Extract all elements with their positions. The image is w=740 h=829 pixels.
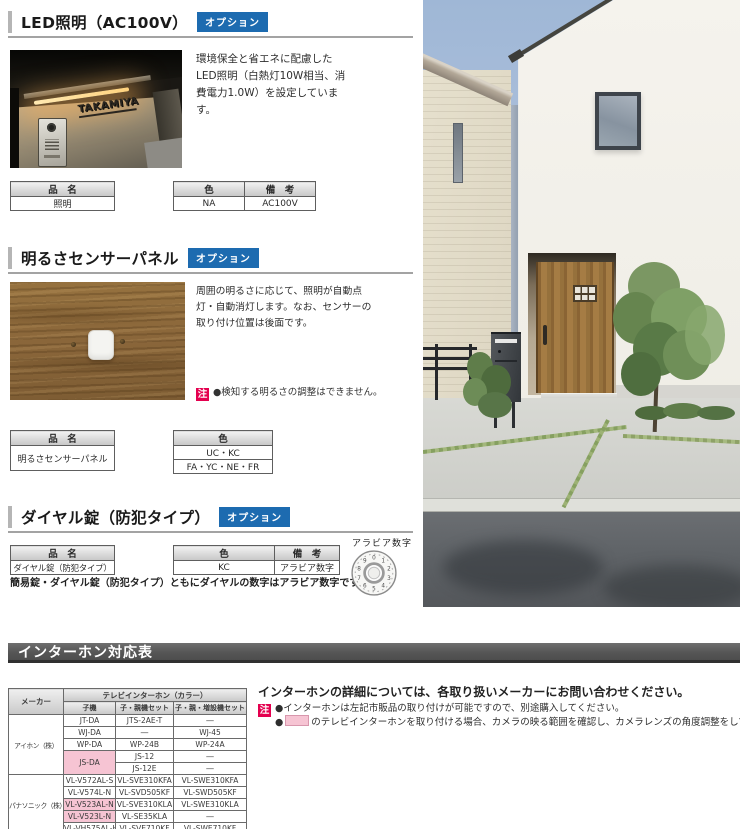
model-cell: WP-24A: [174, 739, 247, 751]
dial-digit: 4: [381, 584, 385, 590]
model-cell: VL-V574L-N: [64, 787, 116, 799]
dial-lock-section-title: ダイヤル錠（防犯タイプ）: [21, 506, 210, 528]
option-badge: オプション: [197, 12, 268, 32]
intercom-button: [44, 155, 60, 158]
foliage-blob: [478, 392, 512, 418]
led-description: 環境保全と省エネに配慮したLED照明（白熱灯10W相当、消費電力1.0W）を設定…: [196, 51, 346, 119]
dial-digit: 0: [372, 555, 376, 561]
intercom-table: メーカー テレビインターホン（カラー） 子機 子・親機セット 子・親・増設機セッ…: [8, 688, 247, 829]
col-header-extension-set: 子・親・増設機セット: [174, 702, 247, 715]
model-cell: VL-SWE310KFA: [174, 775, 247, 787]
led-color-table: 色 備 考 NA AC100V: [173, 181, 316, 211]
group-header: テレビインターホン（カラー）: [64, 689, 247, 702]
model-cell: ―: [174, 715, 247, 727]
sensor-color-header: 色: [174, 431, 273, 446]
dial-lock-icon: 0 1 2 3 4 5 6 7 8 9: [350, 549, 398, 597]
lower-panel: [144, 137, 182, 168]
table-row: パナソニック（株） VL-V572AL-S VL-SVE310KFA VL-SW…: [9, 775, 247, 787]
screw-right: [120, 339, 125, 344]
model-cell: VL-SVE710KF: [116, 823, 174, 829]
model-cell: ―: [174, 763, 247, 775]
screw-left: [71, 342, 76, 347]
led-note-header: 備 考: [245, 182, 316, 197]
model-cell-highlighted: VL-V523L-N: [64, 811, 116, 823]
col-header-handset: 子機: [64, 702, 116, 715]
door-window-mullion: [573, 293, 597, 295]
dial-digit: 2: [387, 566, 391, 572]
model-cell: VL-SWD505KF: [174, 787, 247, 799]
model-cell: JS-12E: [116, 763, 174, 775]
led-section-title: LED照明（AC100V）: [21, 11, 188, 33]
section-rule: [8, 36, 413, 38]
sensor-note-text: ●検知する明るさの調整はできません。: [213, 387, 383, 398]
intercom-unit: [38, 118, 67, 167]
led-color-header: 色: [174, 182, 245, 197]
model-cell: ―: [116, 727, 174, 739]
sensor-section-heading: 明るさセンサーパネル オプション: [8, 247, 259, 269]
model-cell: WJ-45: [174, 727, 247, 739]
dial-digit: 7: [357, 576, 361, 582]
col-header-set: 子・親機セット: [116, 702, 174, 715]
sensor-description: 周囲の明るさに応じて、照明が自動点灯・自動消灯します。なお、センサーの取り付け位…: [196, 284, 380, 332]
intercom-camera: [47, 123, 56, 132]
model-cell: VL-SE35KLA: [116, 811, 174, 823]
led-name-value: 照明: [11, 197, 115, 211]
model-cell: VL-SVE310KFA: [116, 775, 174, 787]
option-badge: オプション: [219, 507, 290, 527]
foliage-blob: [621, 352, 661, 396]
model-cell: JT-DA: [64, 715, 116, 727]
tree-shadow: [443, 540, 603, 595]
model-cell: VL-SWE710KF: [174, 823, 247, 829]
sensor-name-value: 明るさセンサーパネル: [11, 446, 115, 471]
dial-digit: 3: [387, 576, 391, 582]
dial-digit: 6: [363, 584, 367, 590]
tree-shadow: [603, 565, 740, 607]
sensor-section-title: 明るさセンサーパネル: [21, 247, 179, 269]
led-section-heading: LED照明（AC100V） オプション: [8, 11, 268, 33]
model-cell: VL-SVE310KLA: [116, 799, 174, 811]
bullet: ●: [275, 717, 283, 728]
pink-highlight-swatch: [285, 715, 309, 726]
note-badge: 注: [258, 704, 271, 717]
model-cell: VL-V572AL-S: [64, 775, 116, 787]
model-cell: ―: [174, 811, 247, 823]
intercom-speaker: [45, 139, 59, 150]
dial-lock-color-table: 色 備 考 KC アラビア数字: [173, 545, 340, 575]
dial-lock-color-header: 色: [174, 546, 275, 561]
sensor-color-value-2: FA・YC・NE・FR: [174, 460, 273, 474]
led-note-value: AC100V: [245, 197, 316, 211]
dial-lock-name-header: 品 名: [11, 546, 115, 561]
dial-lock-note-value: アラビア数字: [275, 561, 340, 575]
neighbor-window: [453, 123, 463, 183]
dial-lock-caption: 簡易錠・ダイヤル錠（防犯タイプ）ともにダイヤルの数字はアラビア数字です。: [10, 574, 368, 589]
maker-cell: アイホン（株）: [9, 715, 64, 775]
house-entrance-photo: [423, 0, 740, 607]
post-intercom-dot: [498, 350, 501, 353]
upper-window: [595, 92, 641, 150]
intercom-banner: インターホン対応表: [8, 643, 740, 663]
sensor-name-header: 品 名: [11, 431, 115, 446]
post-mail-slot: [495, 360, 517, 362]
dial-lock-color-value: KC: [174, 561, 275, 575]
model-cell: VL-SWE310KLA: [174, 799, 247, 811]
dial-lock-note-header: 備 考: [275, 546, 340, 561]
heading-accent-bar: [8, 506, 12, 528]
heading-accent-bar: [8, 247, 12, 269]
sensor-color-table: 色 UC・KC FA・YC・NE・FR: [173, 430, 273, 474]
model-cell: VL-SVD505KF: [116, 787, 174, 799]
led-color-value: NA: [174, 197, 245, 211]
model-cell: WJ-DA: [64, 727, 116, 739]
groundcover: [697, 406, 735, 420]
section-rule: [8, 272, 413, 274]
dial-lock-name-value: ダイヤル錠（防犯タイプ）: [11, 561, 115, 575]
table-row: メーカー テレビインターホン（カラー）: [9, 689, 247, 702]
sensor-name-table: 品 名 明るさセンサーパネル: [10, 430, 115, 471]
fence-post: [435, 344, 438, 400]
photo-left-edge: [10, 88, 19, 168]
section-rule: [8, 531, 413, 533]
heading-accent-bar: [8, 11, 12, 33]
model-cell: JS-12: [116, 751, 174, 763]
intercom-note-2: ●のテレビインターホンを取り付ける場合、カメラの映る範囲を確認し、カメラレンズの…: [275, 714, 740, 728]
led-name-header: 品 名: [11, 182, 115, 197]
option-badge: オプション: [188, 248, 259, 268]
model-cell-highlighted: JS-DA: [64, 751, 116, 775]
dial-digit: 1: [381, 558, 385, 564]
sensor-color-value-1: UC・KC: [174, 446, 273, 460]
maker-header: メーカー: [9, 689, 64, 715]
dial-digit: 8: [357, 566, 361, 572]
door-handle: [543, 325, 547, 345]
brightness-sensor: [88, 330, 114, 360]
led-product-photo: TAKAMIYA: [10, 50, 182, 168]
model-cell: WP-DA: [64, 739, 116, 751]
arabic-numerals-label: アラビア数字: [352, 536, 412, 549]
model-cell: WP-24B: [116, 739, 174, 751]
post-leg: [512, 402, 515, 428]
intercom-note-1-text: インターホンは左記市販品の取り付けが可能ですので、別途購入してください。: [283, 703, 624, 714]
model-cell: ―: [174, 751, 247, 763]
note-badge: 注: [196, 388, 209, 401]
intercom-info: インターホンの詳細については、各取り扱いメーカーにお問い合わせください。: [258, 683, 689, 700]
catalog-page: LED照明（AC100V） オプション TAKAMIYA 環境保全と省エネに配慮…: [0, 0, 740, 829]
model-cell: VL-VH575AL-H: [64, 823, 116, 829]
curb-strip: [423, 498, 740, 512]
dial-digit: 5: [372, 587, 376, 593]
sensor-product-photo: [10, 282, 185, 400]
model-cell-highlighted: VL-V523AL-N: [64, 799, 116, 811]
post-nameplate: [495, 339, 517, 343]
sensor-note-line: 注●検知する明るさの調整はできません。: [196, 384, 383, 401]
dial-lock-section-heading: ダイヤル錠（防犯タイプ） オプション: [8, 506, 290, 528]
dial-lock-name-table: 品 名 ダイヤル錠（防犯タイプ）: [10, 545, 115, 575]
maker-cell: パナソニック（株）: [9, 775, 64, 829]
led-name-table: 品 名 照明: [10, 181, 115, 211]
model-cell: JTS-2AE-T: [116, 715, 174, 727]
intercom-note-2-text: のテレビインターホンを取り付ける場合、カメラの映る範囲を確認し、カメラレンズの角…: [311, 717, 740, 728]
foliage-blob: [685, 305, 725, 365]
front-door: [536, 262, 614, 393]
dial-digit: 9: [363, 558, 367, 564]
table-row: アイホン（株） JT-DA JTS-2AE-T ―: [9, 715, 247, 727]
